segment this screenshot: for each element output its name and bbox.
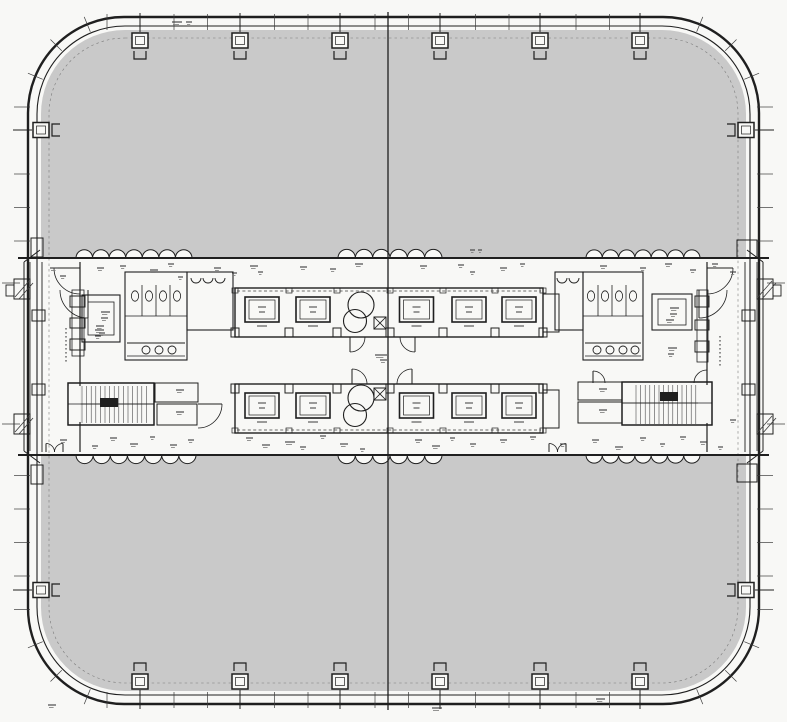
marker-box	[232, 33, 248, 48]
stair-landing	[698, 385, 711, 423]
marker-box	[532, 33, 548, 48]
marker-box	[432, 674, 448, 689]
marker-box	[132, 674, 148, 689]
marker-box	[332, 33, 348, 48]
marker-box	[532, 674, 548, 689]
marker-box	[232, 674, 248, 689]
marker-box	[132, 33, 148, 48]
floor-plan-sheet: Typical floor plan - square high-rise of…	[0, 0, 787, 722]
marker-box	[332, 674, 348, 689]
marker-box	[632, 33, 648, 48]
floor-plan-drawing: Typical floor plan - square high-rise of…	[0, 0, 787, 722]
marker-box	[33, 123, 49, 138]
wall-rect	[773, 285, 781, 296]
wall-rect	[6, 285, 14, 296]
marker-box	[33, 583, 49, 598]
stair-arrow	[100, 398, 118, 407]
marker-box	[738, 583, 754, 598]
stair-arrow	[660, 392, 678, 401]
marker-box	[432, 33, 448, 48]
marker-box	[738, 123, 754, 138]
marker-box	[632, 674, 648, 689]
